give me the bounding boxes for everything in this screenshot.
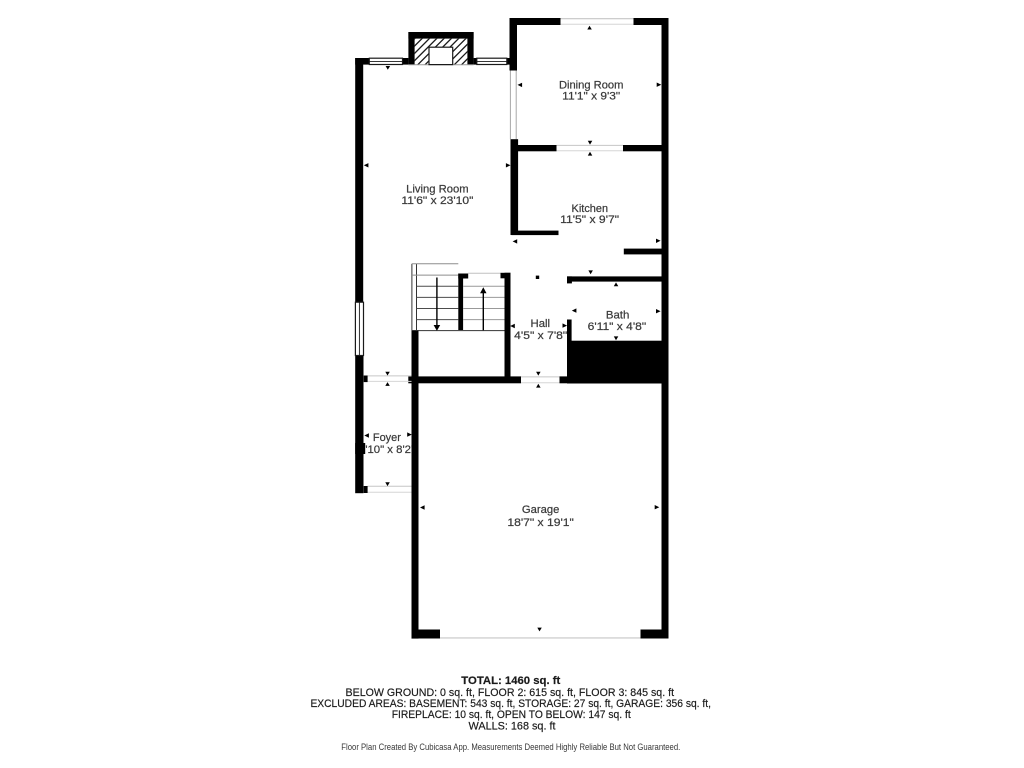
svg-text:6'11" x 4'8": 6'11" x 4'8": [588, 321, 647, 333]
svg-text:Foyer: Foyer: [373, 432, 401, 444]
svg-text:BELOW GROUND: 0 sq. ft, FLOOR: BELOW GROUND: 0 sq. ft, FLOOR 2: 615 sq.…: [346, 687, 675, 699]
svg-text:WALLS: 168 sq. ft: WALLS: 168 sq. ft: [469, 720, 556, 732]
svg-text:11'5" x 9'7": 11'5" x 9'7": [560, 214, 619, 226]
svg-text:Kitchen: Kitchen: [572, 203, 609, 215]
svg-text:FIREPLACE: 10 sq. ft, OPEN TO: FIREPLACE: 10 sq. ft, OPEN TO BELOW: 147…: [392, 709, 631, 721]
svg-text:4'5" x 7'8": 4'5" x 7'8": [514, 330, 567, 342]
svg-text:Bath: Bath: [606, 309, 630, 321]
svg-text:TOTAL: 1460 sq. ft: TOTAL: 1460 sq. ft: [461, 675, 560, 687]
svg-text:18'7" x 19'1": 18'7" x 19'1": [507, 517, 574, 529]
svg-text:Living Room: Living Room: [406, 184, 469, 196]
svg-text:Hall: Hall: [531, 318, 551, 330]
svg-text:9'10" x 8'2": 9'10" x 8'2": [359, 444, 415, 456]
svg-text:11'6" x 23'10": 11'6" x 23'10": [401, 195, 473, 207]
svg-text:Garage: Garage: [522, 504, 560, 516]
svg-text:Floor Plan Created By Cubicasa: Floor Plan Created By Cubicasa App. Meas…: [341, 742, 680, 752]
svg-text:11'1" x 9'3": 11'1" x 9'3": [562, 91, 620, 103]
